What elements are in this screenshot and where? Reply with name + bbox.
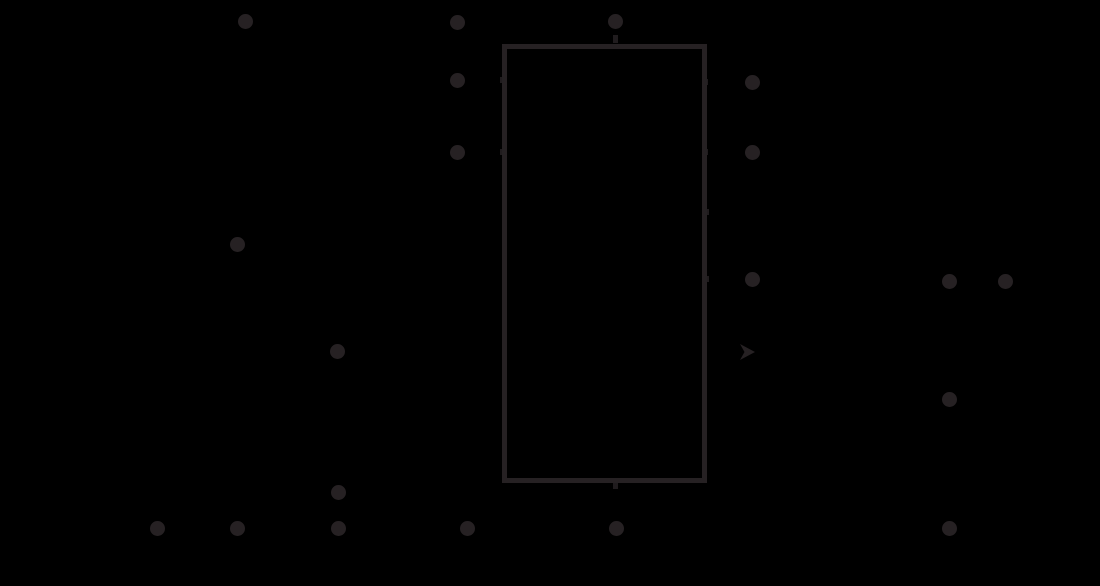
junction-dot [450,145,465,160]
junction-dot [331,485,346,500]
wire-stub [613,482,618,489]
junction-dot [745,272,760,287]
junction-dot [942,392,957,407]
junction-dot [998,274,1013,289]
junction-dot [238,14,253,29]
junction-dot [230,237,245,252]
junction-dot [608,14,623,29]
junction-dot [330,344,345,359]
component-box [502,44,707,483]
wire-stub [500,77,504,83]
junction-dot [450,15,465,30]
junction-dot [942,521,957,536]
wire-stub [705,79,708,85]
junction-dot [609,521,624,536]
junction-dot [460,521,475,536]
junction-dot [450,73,465,88]
wire-stub [613,35,618,43]
wire-stub [705,276,709,282]
junction-dot [150,521,165,536]
junction-dot [331,521,346,536]
junction-dot [942,274,957,289]
junction-dot [230,521,245,536]
wire-stub [500,149,504,155]
wire-stub [705,209,709,215]
junction-dot [745,75,760,90]
schematic-canvas [0,0,1100,586]
wire-stub [705,149,708,155]
junction-dot [745,145,760,160]
right-arrowhead-icon [740,344,755,360]
